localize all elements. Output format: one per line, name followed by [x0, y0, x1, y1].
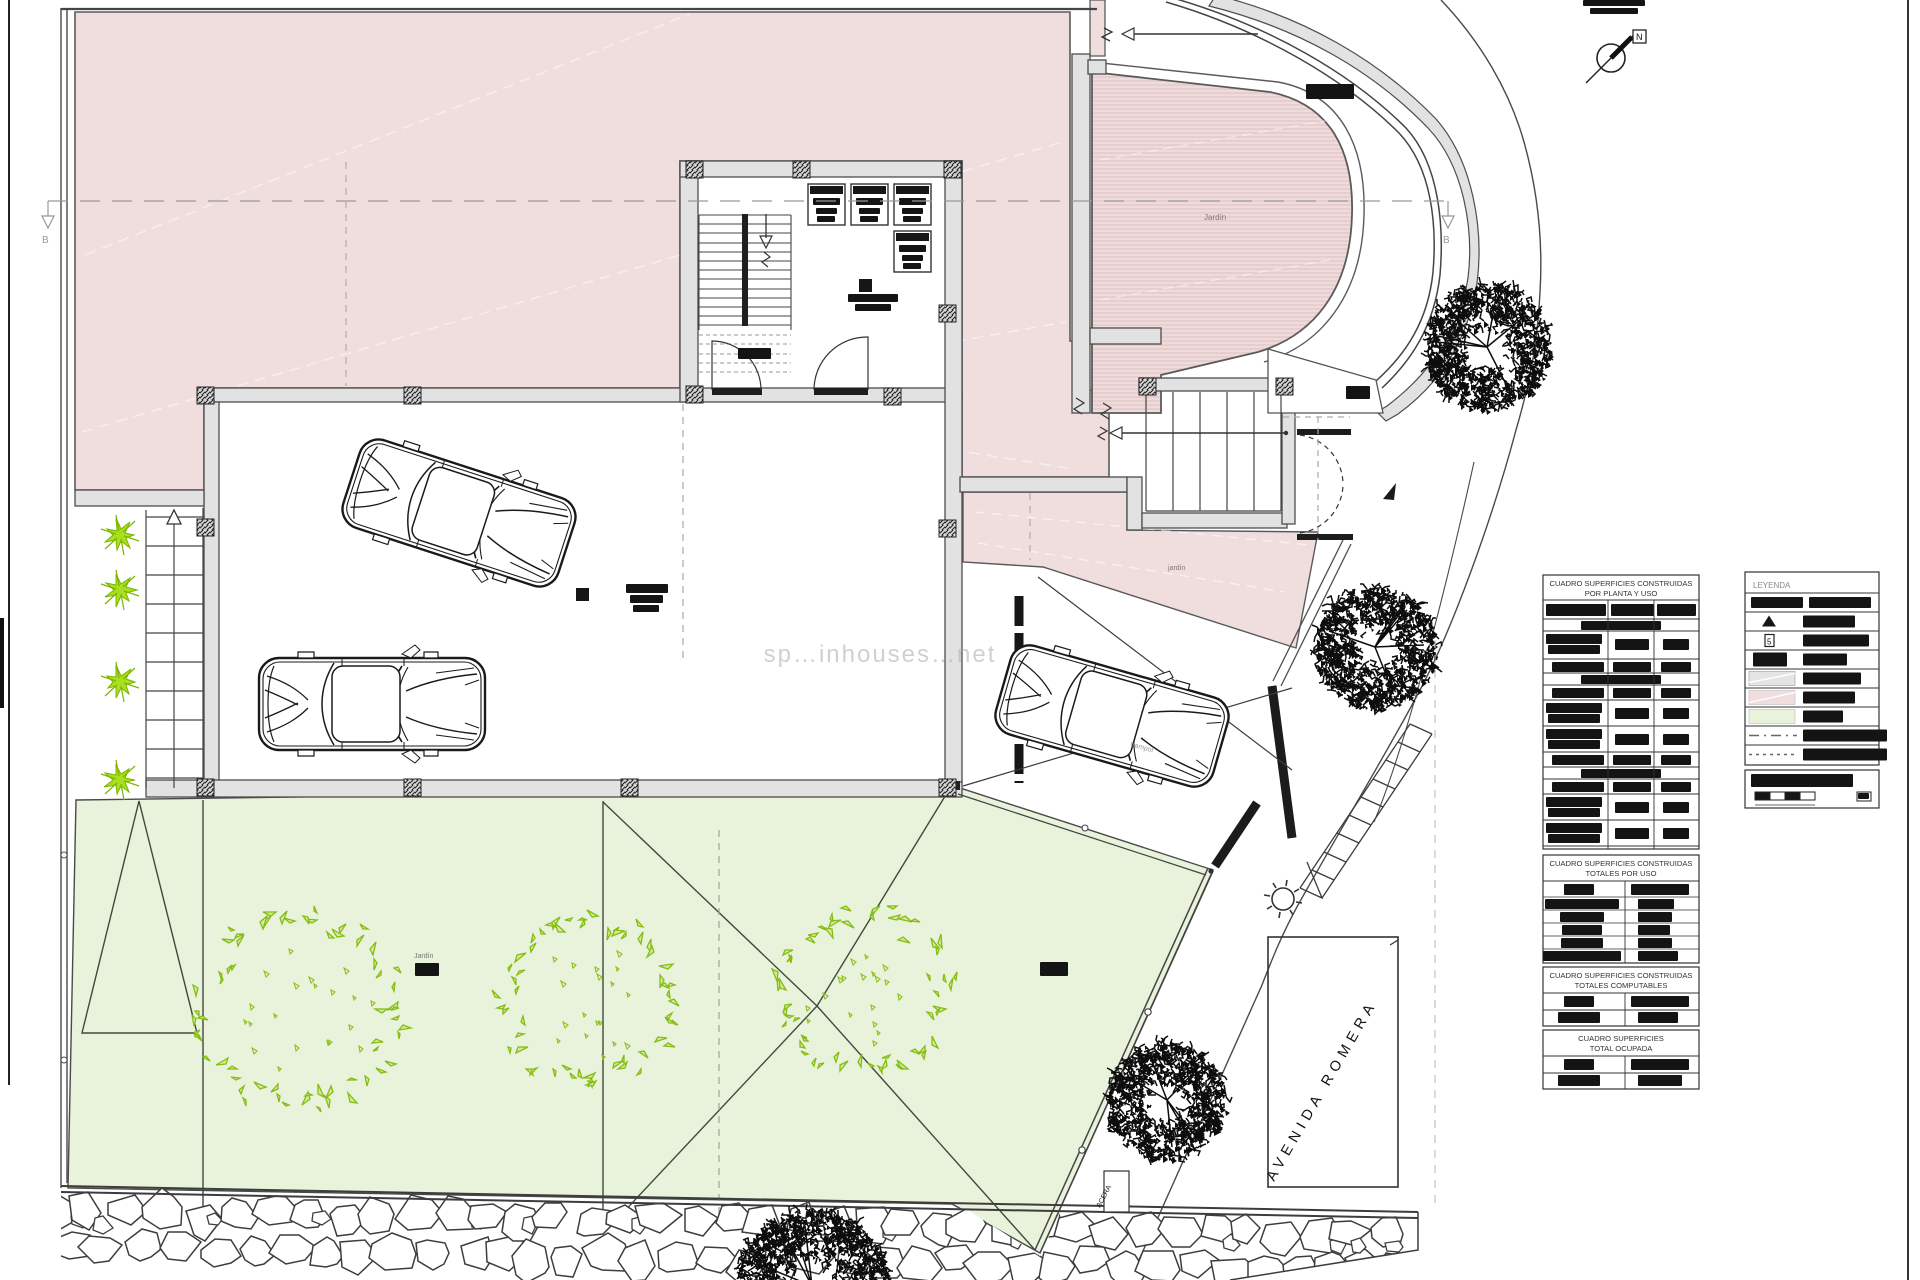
svg-text:TOTALES COMPUTABLES: TOTALES COMPUTABLES — [1575, 981, 1668, 990]
svg-text:TOTAL OCUPADA: TOTAL OCUPADA — [1590, 1044, 1654, 1053]
svg-text:B: B — [1443, 235, 1450, 246]
svg-text:CUADRO SUPERFICIES CONSTRUIDAS: CUADRO SUPERFICIES CONSTRUIDAS — [1549, 579, 1692, 588]
svg-text:CUADRO SUPERFICIES: CUADRO SUPERFICIES — [1578, 1034, 1664, 1043]
svg-text:LEYENDA: LEYENDA — [1753, 581, 1791, 590]
svg-text:B: B — [42, 235, 49, 246]
svg-text:Jardín: Jardín — [414, 953, 434, 960]
svg-text:sp…inhouses…net: sp…inhouses…net — [764, 641, 997, 668]
svg-text:CUADRO SUPERFICIES CONSTRUIDAS: CUADRO SUPERFICIES CONSTRUIDAS — [1549, 859, 1692, 868]
svg-text:TOTALES POR USO: TOTALES POR USO — [1585, 869, 1656, 878]
svg-text:POR PLANTA Y USO: POR PLANTA Y USO — [1585, 589, 1658, 598]
svg-text:N: N — [1636, 32, 1643, 42]
svg-text:Jardín: Jardín — [1204, 213, 1226, 222]
svg-text:5: 5 — [1767, 638, 1772, 647]
svg-text:CUADRO SUPERFICIES CONSTRUIDAS: CUADRO SUPERFICIES CONSTRUIDAS — [1549, 971, 1692, 980]
svg-text:jardín: jardín — [1167, 565, 1186, 572]
